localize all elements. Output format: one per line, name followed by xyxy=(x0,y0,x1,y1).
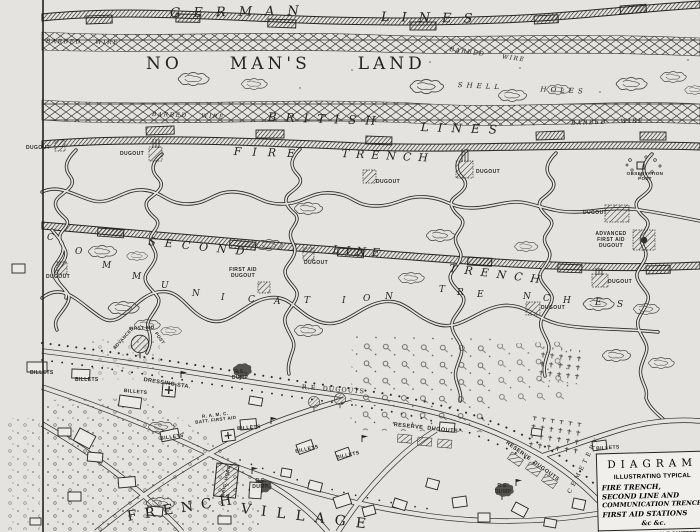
barbed-wire-band-upper xyxy=(42,32,700,56)
trench-diagram-page: GERMANLINESBARBED WIRENO MAN'S LANDBARBE… xyxy=(0,0,700,532)
legend-title: DIAGRAM xyxy=(601,457,700,472)
dressing-station-symbol xyxy=(162,383,176,397)
ramc-aid-post-symbol xyxy=(221,429,235,442)
dugout-symbols xyxy=(55,139,655,315)
legend-box: DIAGRAM ILLUSTRATING TYPICAL FIRE TRENCH… xyxy=(596,451,700,532)
legend-subtitle: ILLUSTRATING TYPICAL xyxy=(601,472,700,482)
advanced-first-aid-dugout-symbol xyxy=(633,230,655,250)
second-line-trench-band xyxy=(42,222,700,274)
fire-trench-band xyxy=(42,126,700,151)
map-drawing xyxy=(0,0,700,532)
shell-holes-area xyxy=(178,59,700,101)
german-trench-band xyxy=(42,1,700,30)
barbed-wire-band-lower xyxy=(42,100,700,125)
